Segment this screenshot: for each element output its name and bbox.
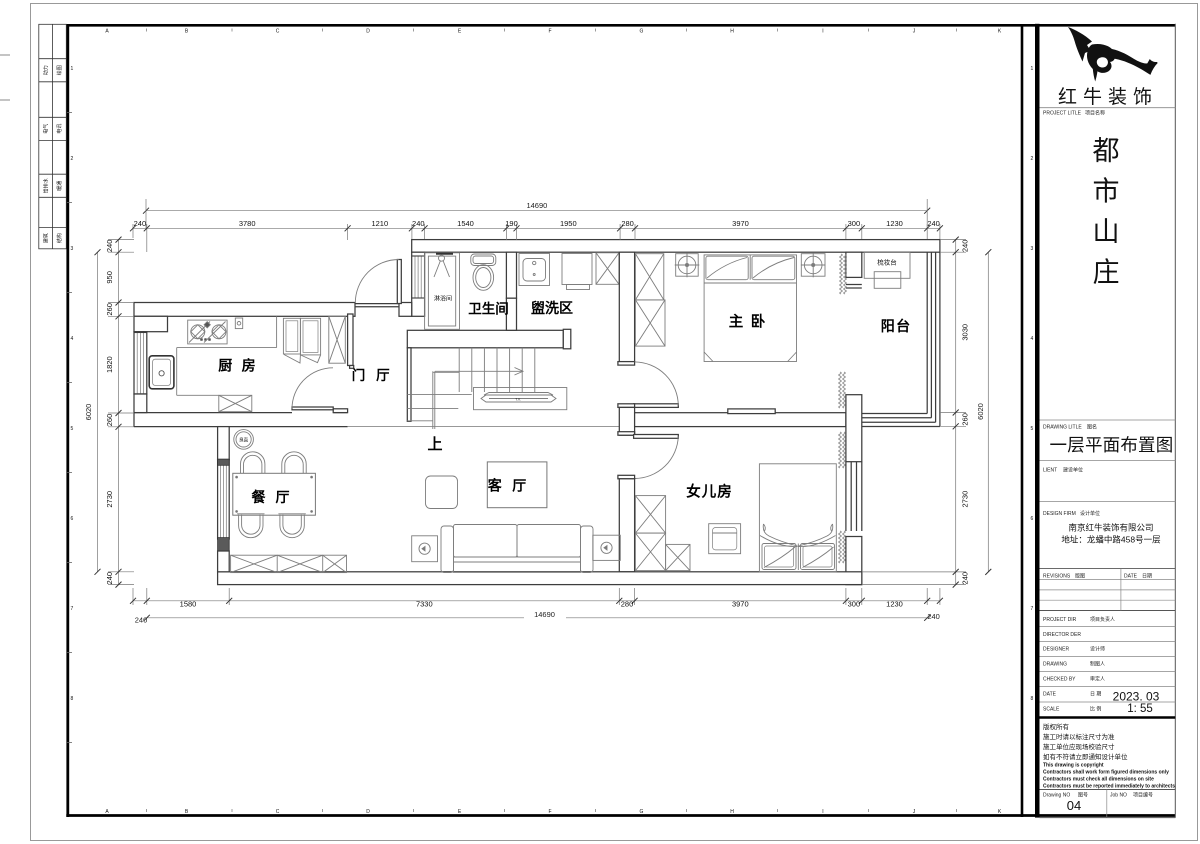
svg-text:Contractors shall work form fi: Contractors shall work form figured dime… bbox=[1043, 770, 1169, 776]
svg-text:240: 240 bbox=[105, 572, 114, 585]
svg-text:D: D bbox=[366, 809, 370, 815]
svg-text:6: 6 bbox=[1031, 516, 1034, 522]
svg-text:6: 6 bbox=[71, 516, 74, 522]
svg-text:一层平面布置图: 一层平面布置图 bbox=[1050, 435, 1174, 455]
svg-text:240: 240 bbox=[135, 616, 148, 625]
svg-text:SCALE: SCALE bbox=[1043, 707, 1060, 713]
svg-text:I: I bbox=[822, 29, 823, 35]
svg-text:F: F bbox=[548, 29, 551, 35]
svg-text:Contractors must check all dim: Contractors must check all dimensions on… bbox=[1043, 777, 1154, 783]
svg-text:庄: 庄 bbox=[1093, 258, 1120, 288]
svg-text:T.V.: T.V. bbox=[515, 398, 521, 402]
svg-text:CHECKED BY: CHECKED BY bbox=[1043, 677, 1076, 683]
svg-text:I: I bbox=[595, 28, 596, 33]
svg-text:I: I bbox=[146, 808, 147, 813]
svg-text:I: I bbox=[822, 809, 823, 815]
svg-text:1: 1 bbox=[71, 66, 74, 72]
svg-text:Contractors must be reported i: Contractors must be reported immediately… bbox=[1043, 784, 1175, 790]
svg-text:7: 7 bbox=[1031, 606, 1034, 612]
svg-text:1580: 1580 bbox=[180, 600, 197, 609]
svg-text:项目负责人: 项目负责人 bbox=[1090, 616, 1115, 623]
svg-text:8: 8 bbox=[71, 696, 74, 702]
svg-text:I: I bbox=[504, 808, 505, 813]
svg-text:设计师: 设计师 bbox=[1090, 646, 1105, 653]
svg-text:1: 1 bbox=[1031, 66, 1034, 72]
svg-text:地址：龙蟠中路458号一层: 地址：龙蟠中路458号一层 bbox=[1061, 535, 1160, 545]
svg-text:5: 5 bbox=[1031, 426, 1034, 432]
svg-text:DESIGN FIRM: DESIGN FIRM bbox=[1043, 511, 1076, 517]
svg-text:DRAWING: DRAWING bbox=[1043, 662, 1067, 668]
svg-text:I: I bbox=[777, 808, 778, 813]
svg-text:市: 市 bbox=[1093, 177, 1120, 207]
svg-text:1820: 1820 bbox=[105, 356, 114, 373]
svg-text:I: I bbox=[231, 28, 232, 33]
svg-text:3: 3 bbox=[71, 246, 74, 252]
svg-text:1: 55: 1: 55 bbox=[1127, 703, 1153, 715]
svg-text:主卧: 主卧 bbox=[729, 312, 773, 330]
svg-text:1540: 1540 bbox=[457, 219, 474, 228]
svg-text:G: G bbox=[640, 809, 644, 815]
svg-text:日 期: 日 期 bbox=[1090, 692, 1101, 698]
svg-text:I: I bbox=[956, 808, 957, 813]
svg-text:This drawing is copyright: This drawing is copyright bbox=[1043, 763, 1104, 769]
svg-text:动力: 动力 bbox=[43, 65, 50, 75]
svg-text:2: 2 bbox=[71, 156, 74, 162]
svg-text:施工时请以标注尺寸为准: 施工时请以标注尺寸为准 bbox=[1043, 732, 1115, 741]
svg-text:LIENT: LIENT bbox=[1043, 468, 1057, 474]
svg-text:3030: 3030 bbox=[961, 324, 970, 341]
svg-text:淋浴间: 淋浴间 bbox=[434, 295, 452, 303]
svg-text:260: 260 bbox=[961, 413, 970, 426]
svg-text:臭直: 臭直 bbox=[239, 437, 248, 444]
svg-text:盥洗区: 盥洗区 bbox=[531, 300, 573, 316]
svg-text:I: I bbox=[777, 28, 778, 33]
svg-text:I: I bbox=[413, 28, 414, 33]
svg-text:建筑: 建筑 bbox=[43, 233, 50, 243]
svg-text:I: I bbox=[956, 28, 957, 33]
svg-text:给排水: 给排水 bbox=[43, 178, 50, 193]
svg-text:260: 260 bbox=[105, 303, 114, 316]
svg-text:设计单位: 设计单位 bbox=[1080, 510, 1100, 517]
svg-text:2730: 2730 bbox=[961, 491, 970, 508]
svg-text:280: 280 bbox=[621, 219, 634, 228]
svg-text:C: C bbox=[276, 809, 280, 815]
svg-text:版权所有: 版权所有 bbox=[1043, 722, 1070, 731]
svg-text:3970: 3970 bbox=[732, 600, 749, 609]
svg-text:比 例: 比 例 bbox=[1090, 706, 1101, 713]
svg-text:3780: 3780 bbox=[239, 219, 256, 228]
svg-text:女儿房: 女儿房 bbox=[686, 483, 733, 501]
svg-text:6020: 6020 bbox=[976, 403, 985, 420]
svg-text:240: 240 bbox=[927, 612, 940, 621]
svg-text:G: G bbox=[640, 29, 644, 35]
svg-text:6020: 6020 bbox=[84, 404, 93, 421]
svg-text:如有不符请立即通知设计单位: 如有不符请立即通知设计单位 bbox=[1043, 752, 1128, 761]
svg-text:Job NO: Job NO bbox=[1110, 793, 1127, 799]
svg-text:H: H bbox=[730, 29, 734, 35]
svg-text:C: C bbox=[276, 29, 280, 35]
svg-text:PROJECT DIR: PROJECT DIR bbox=[1043, 617, 1077, 623]
svg-text:240: 240 bbox=[927, 219, 940, 228]
svg-text:260: 260 bbox=[105, 414, 114, 427]
svg-text:DRAWING LITLE: DRAWING LITLE bbox=[1043, 425, 1082, 431]
svg-text:DIRECTOR DER: DIRECTOR DER bbox=[1043, 632, 1081, 638]
svg-text:I: I bbox=[413, 808, 414, 813]
svg-text:3970: 3970 bbox=[732, 219, 749, 228]
svg-text:I: I bbox=[686, 28, 687, 33]
svg-text:300: 300 bbox=[848, 219, 861, 228]
svg-text:REVISIONS: REVISIONS bbox=[1043, 574, 1071, 580]
svg-text:H: H bbox=[730, 809, 734, 815]
svg-text:建设单位: 建设单位 bbox=[1063, 467, 1083, 474]
svg-text:制图人: 制图人 bbox=[1090, 661, 1105, 668]
svg-text:都: 都 bbox=[1093, 136, 1120, 166]
svg-text:卫生间: 卫生间 bbox=[468, 301, 509, 317]
svg-text:240: 240 bbox=[412, 219, 425, 228]
svg-text:项目名称: 项目名称 bbox=[1085, 110, 1105, 117]
svg-text:2023. 03: 2023. 03 bbox=[1113, 690, 1160, 704]
svg-text:1950: 1950 bbox=[560, 219, 577, 228]
svg-text:红牛装饰: 红牛装饰 bbox=[1058, 86, 1158, 108]
svg-text:F: F bbox=[548, 809, 551, 815]
svg-text:图名: 图名 bbox=[1087, 424, 1097, 431]
svg-text:I: I bbox=[322, 28, 323, 33]
svg-text:阳台: 阳台 bbox=[881, 318, 912, 334]
svg-text:14690: 14690 bbox=[534, 610, 555, 619]
svg-text:I: I bbox=[146, 28, 147, 33]
svg-text:梳妆台: 梳妆台 bbox=[877, 258, 897, 267]
svg-text:240: 240 bbox=[961, 572, 970, 585]
svg-text:审定人: 审定人 bbox=[1090, 676, 1105, 683]
svg-text:I: I bbox=[686, 808, 687, 813]
svg-text:300: 300 bbox=[848, 600, 861, 609]
svg-text:I: I bbox=[322, 808, 323, 813]
svg-text:7330: 7330 bbox=[416, 600, 433, 609]
svg-text:客厅: 客厅 bbox=[487, 478, 537, 494]
svg-text:5: 5 bbox=[71, 426, 74, 432]
svg-text:I: I bbox=[868, 28, 869, 33]
svg-text:8: 8 bbox=[1031, 696, 1034, 702]
svg-text:4: 4 bbox=[1031, 336, 1034, 342]
svg-text:暖通: 暖通 bbox=[56, 181, 63, 191]
svg-text:7: 7 bbox=[71, 606, 74, 612]
svg-text:04: 04 bbox=[1067, 798, 1081, 813]
svg-text:日期: 日期 bbox=[1142, 574, 1152, 580]
svg-text:DESIGNER: DESIGNER bbox=[1043, 647, 1070, 653]
svg-text:上: 上 bbox=[427, 436, 442, 453]
svg-text:1230: 1230 bbox=[886, 600, 903, 609]
svg-text:版图: 版图 bbox=[1075, 573, 1085, 580]
svg-text:2730: 2730 bbox=[105, 491, 114, 508]
svg-text:I: I bbox=[595, 808, 596, 813]
svg-text:950: 950 bbox=[105, 271, 114, 284]
svg-text:DATE: DATE bbox=[1124, 574, 1138, 580]
svg-text:14690: 14690 bbox=[526, 201, 547, 210]
svg-text:240: 240 bbox=[105, 240, 114, 253]
svg-text:1210: 1210 bbox=[371, 219, 388, 228]
svg-text:餐厅: 餐厅 bbox=[251, 489, 300, 505]
svg-text:I: I bbox=[504, 28, 505, 33]
svg-text:项目编号: 项目编号 bbox=[1133, 792, 1153, 799]
svg-text:电气: 电气 bbox=[43, 124, 50, 134]
svg-text:I: I bbox=[231, 808, 232, 813]
svg-text:DATE: DATE bbox=[1043, 692, 1057, 698]
svg-text:PROJECT LITLE: PROJECT LITLE bbox=[1043, 111, 1082, 117]
svg-text:2: 2 bbox=[1031, 156, 1034, 162]
svg-text:南京红牛装饰有限公司: 南京红牛装饰有限公司 bbox=[1068, 523, 1153, 533]
svg-text:3: 3 bbox=[1031, 246, 1034, 252]
svg-text:1230: 1230 bbox=[886, 219, 903, 228]
svg-text:190: 190 bbox=[505, 219, 518, 228]
svg-text:4: 4 bbox=[71, 336, 74, 342]
svg-text:施工单位应现场校验尺寸: 施工单位应现场校验尺寸 bbox=[1043, 742, 1115, 751]
svg-text:山: 山 bbox=[1093, 217, 1120, 247]
svg-text:结构: 结构 bbox=[56, 233, 63, 243]
svg-text:电讯: 电讯 bbox=[56, 124, 63, 134]
svg-text:门厅: 门厅 bbox=[352, 367, 401, 383]
svg-text:D: D bbox=[366, 29, 370, 35]
svg-text:厨房: 厨房 bbox=[218, 358, 265, 374]
svg-text:绘图: 绘图 bbox=[56, 65, 63, 75]
svg-text:280: 280 bbox=[621, 600, 634, 609]
svg-text:240: 240 bbox=[961, 240, 970, 253]
svg-text:240: 240 bbox=[134, 219, 147, 228]
svg-text:I: I bbox=[868, 808, 869, 813]
